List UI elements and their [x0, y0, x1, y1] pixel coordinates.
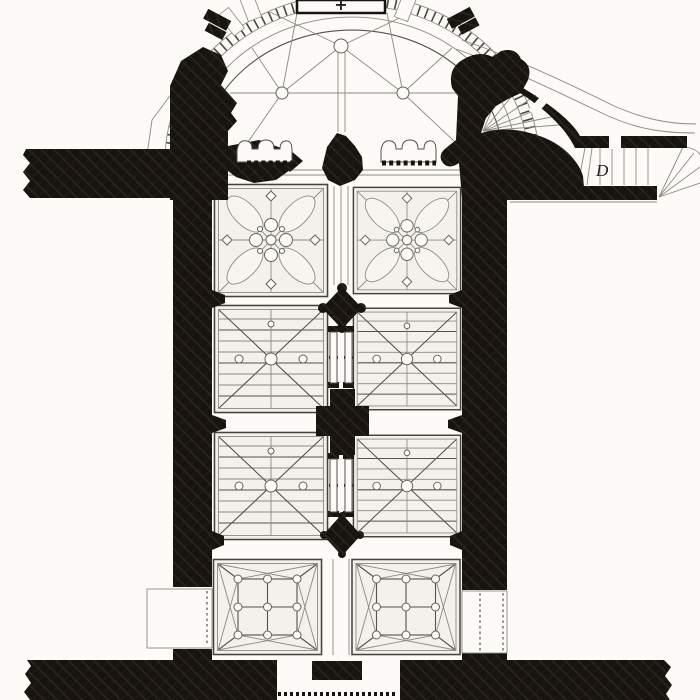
right-side-door [462, 591, 507, 653]
right-nave-wall [462, 183, 507, 590]
altar: + [297, 0, 385, 14]
vault-bay-choir-left [213, 183, 329, 298]
stair-doorway-lower [609, 132, 621, 149]
vault-bay-entrance-right [351, 558, 462, 656]
altar-cross-icon: + [334, 0, 347, 14]
choir-rail-right [381, 140, 436, 162]
floor-plan-drawing: D [0, 0, 700, 700]
choir-rail-left [237, 140, 292, 162]
stair-inner-wall [500, 186, 657, 200]
vault-bay-nave1-left [213, 304, 329, 414]
south-wall-right [400, 660, 672, 700]
apse-boss-left [276, 87, 288, 99]
vault-bay-nave2-right [352, 434, 462, 538]
vault-bay-choir-right [352, 186, 462, 295]
vault-bay-nave1-right [352, 307, 462, 411]
west-transept-wall [23, 149, 173, 198]
apse-boss-right [397, 87, 409, 99]
portal-trumeau [312, 661, 362, 680]
vault-bay-entrance-left [212, 558, 323, 656]
vault-bay-nave2-left [213, 431, 329, 541]
apse-boss-center [334, 39, 348, 53]
south-wall-left [24, 660, 277, 700]
left-side-door [147, 589, 212, 648]
left-nave-wall [173, 149, 212, 587]
staircase-label: D [595, 161, 609, 180]
floor-plan-page: D [0, 0, 700, 700]
